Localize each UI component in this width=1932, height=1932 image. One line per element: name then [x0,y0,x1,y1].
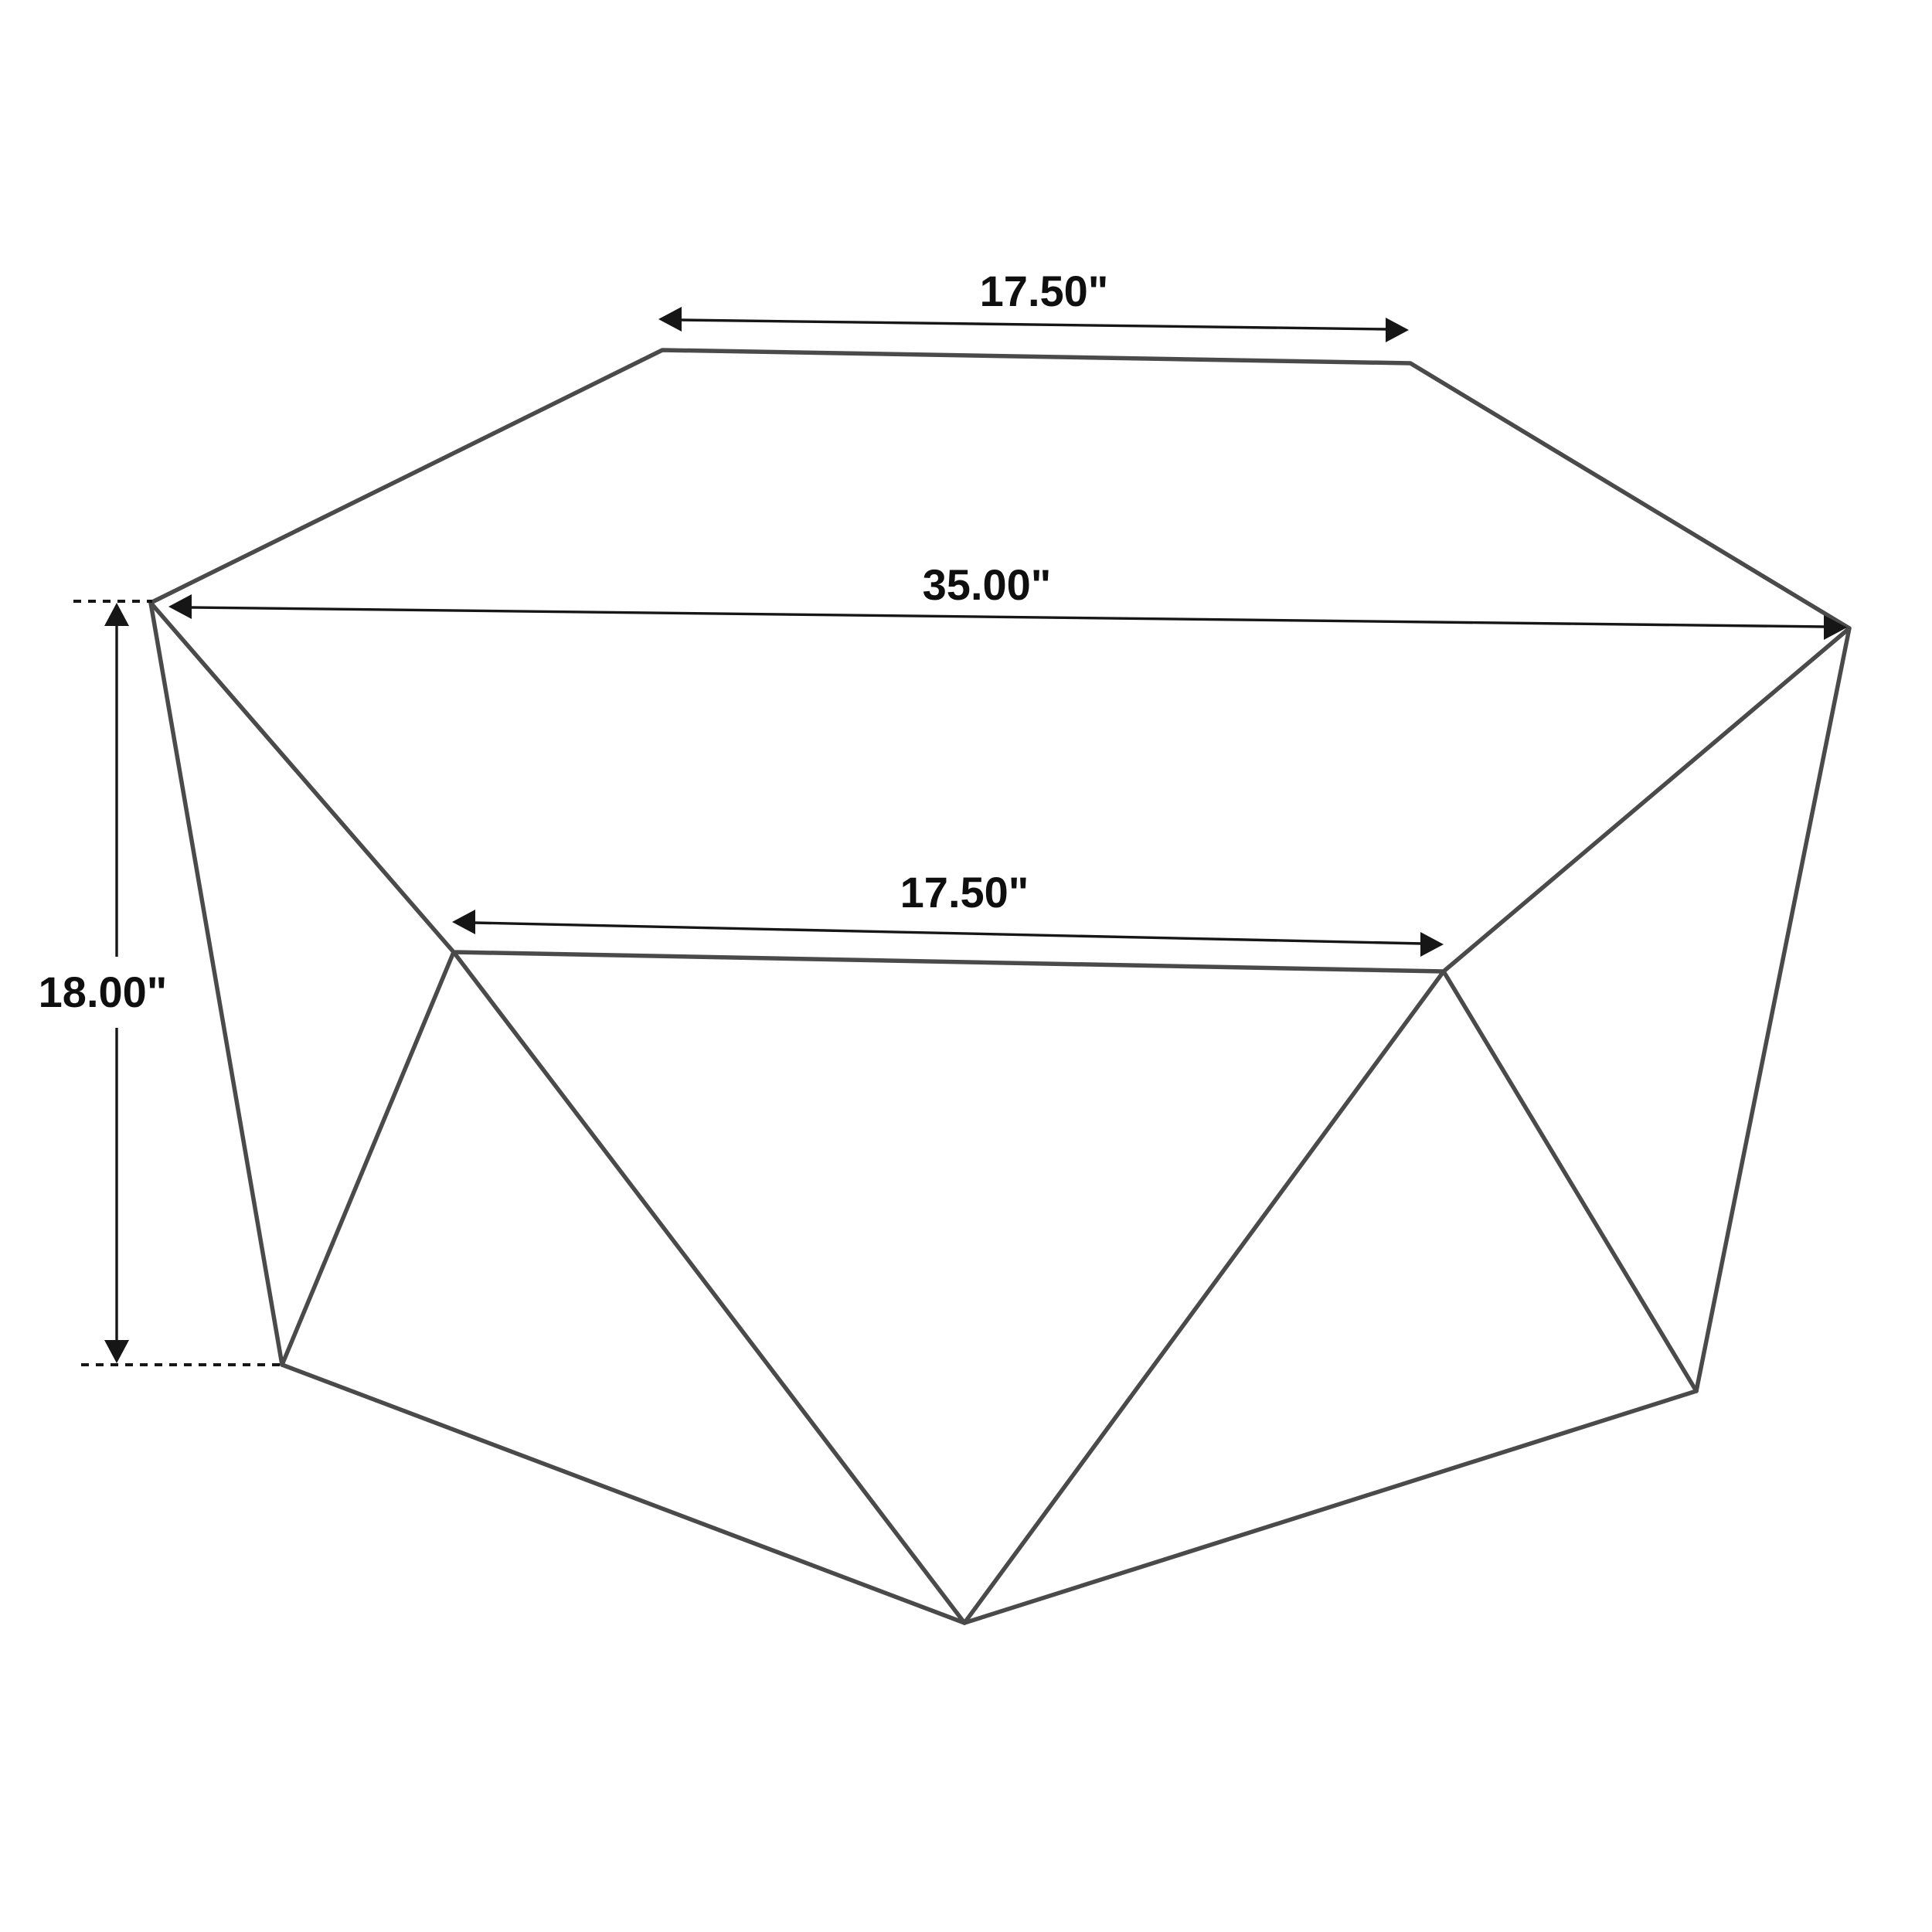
dim-front-width: 17.50" [452,868,1444,957]
arrow-up-icon [104,603,129,626]
dim-front-width-label: 17.50" [900,868,1029,917]
dim-top-width-line [680,320,1387,329]
edge-right-outer [1696,628,1849,1391]
edge-bottom-right [964,1391,1696,1623]
diagram-canvas: 17.50" 35.00" 17.50" 18.00" [0,0,1932,1932]
arrow-left-icon [452,910,475,934]
edge-front-facet-right [964,971,1444,1623]
arrow-right-icon [1420,932,1444,957]
dim-height: 18.00" [39,601,282,1365]
arrow-left-icon [658,307,682,332]
edge-front-facet-left [454,952,964,1623]
arrow-left-icon [168,594,192,619]
edge-left-facet [282,952,454,1365]
arrow-down-icon [104,1340,129,1363]
dim-overall-width-line [190,607,1825,627]
arrow-right-icon [1386,318,1409,342]
dim-front-width-line [474,923,1422,944]
edge-right-facet [1444,971,1696,1391]
table-outline [151,350,1849,1623]
dim-overall-width: 35.00" [168,560,1847,640]
edge-bottom-left [282,1365,964,1623]
furniture-dimension-diagram: 17.50" 35.00" 17.50" 18.00" [0,0,1932,1932]
dim-overall-width-label: 35.00" [923,560,1052,609]
dim-top-width: 17.50" [658,267,1409,342]
dim-top-width-label: 17.50" [980,267,1109,315]
edge-left-outer [151,603,282,1365]
dim-height-label: 18.00" [39,968,168,1016]
